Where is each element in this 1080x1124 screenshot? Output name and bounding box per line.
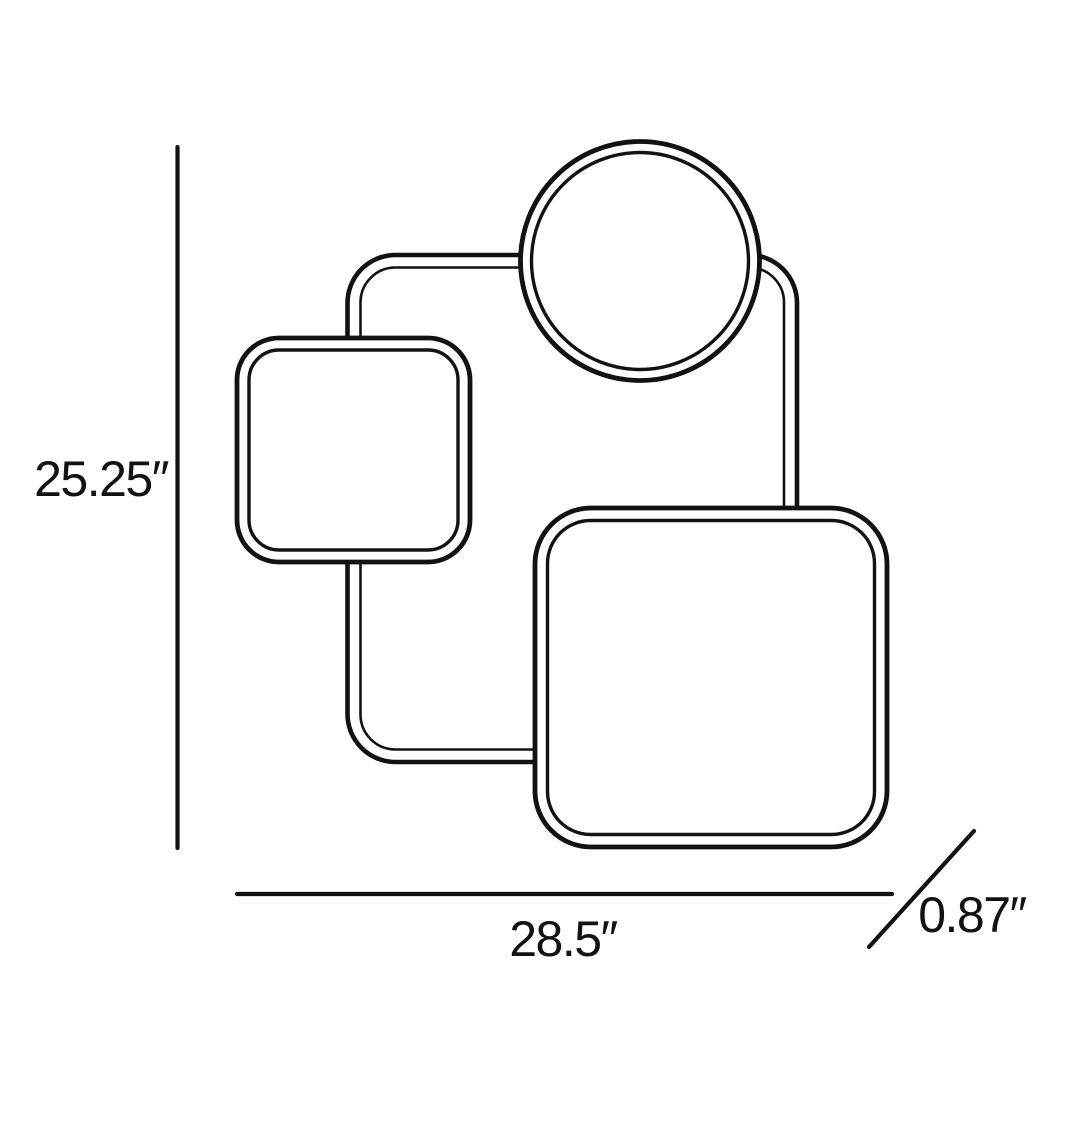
depth-dimension-label: 0.87″ [918, 887, 1026, 943]
small-square-outer-rim [237, 338, 470, 562]
circle-panel-outer-rim [521, 142, 760, 381]
large-rounded-square-panel [535, 508, 887, 847]
circle-panel [521, 142, 760, 381]
small-rounded-square-panel [237, 338, 470, 562]
height-dimension-label: 25.25″ [34, 451, 169, 507]
wall-fixture-line-drawing: 25.25″ 28.5″ 0.87″ [0, 0, 1080, 1124]
large-square-outer-rim [535, 508, 887, 847]
dimension-diagram-page: 25.25″ 28.5″ 0.87″ [0, 0, 1080, 1124]
width-dimension-label: 28.5″ [509, 911, 617, 967]
